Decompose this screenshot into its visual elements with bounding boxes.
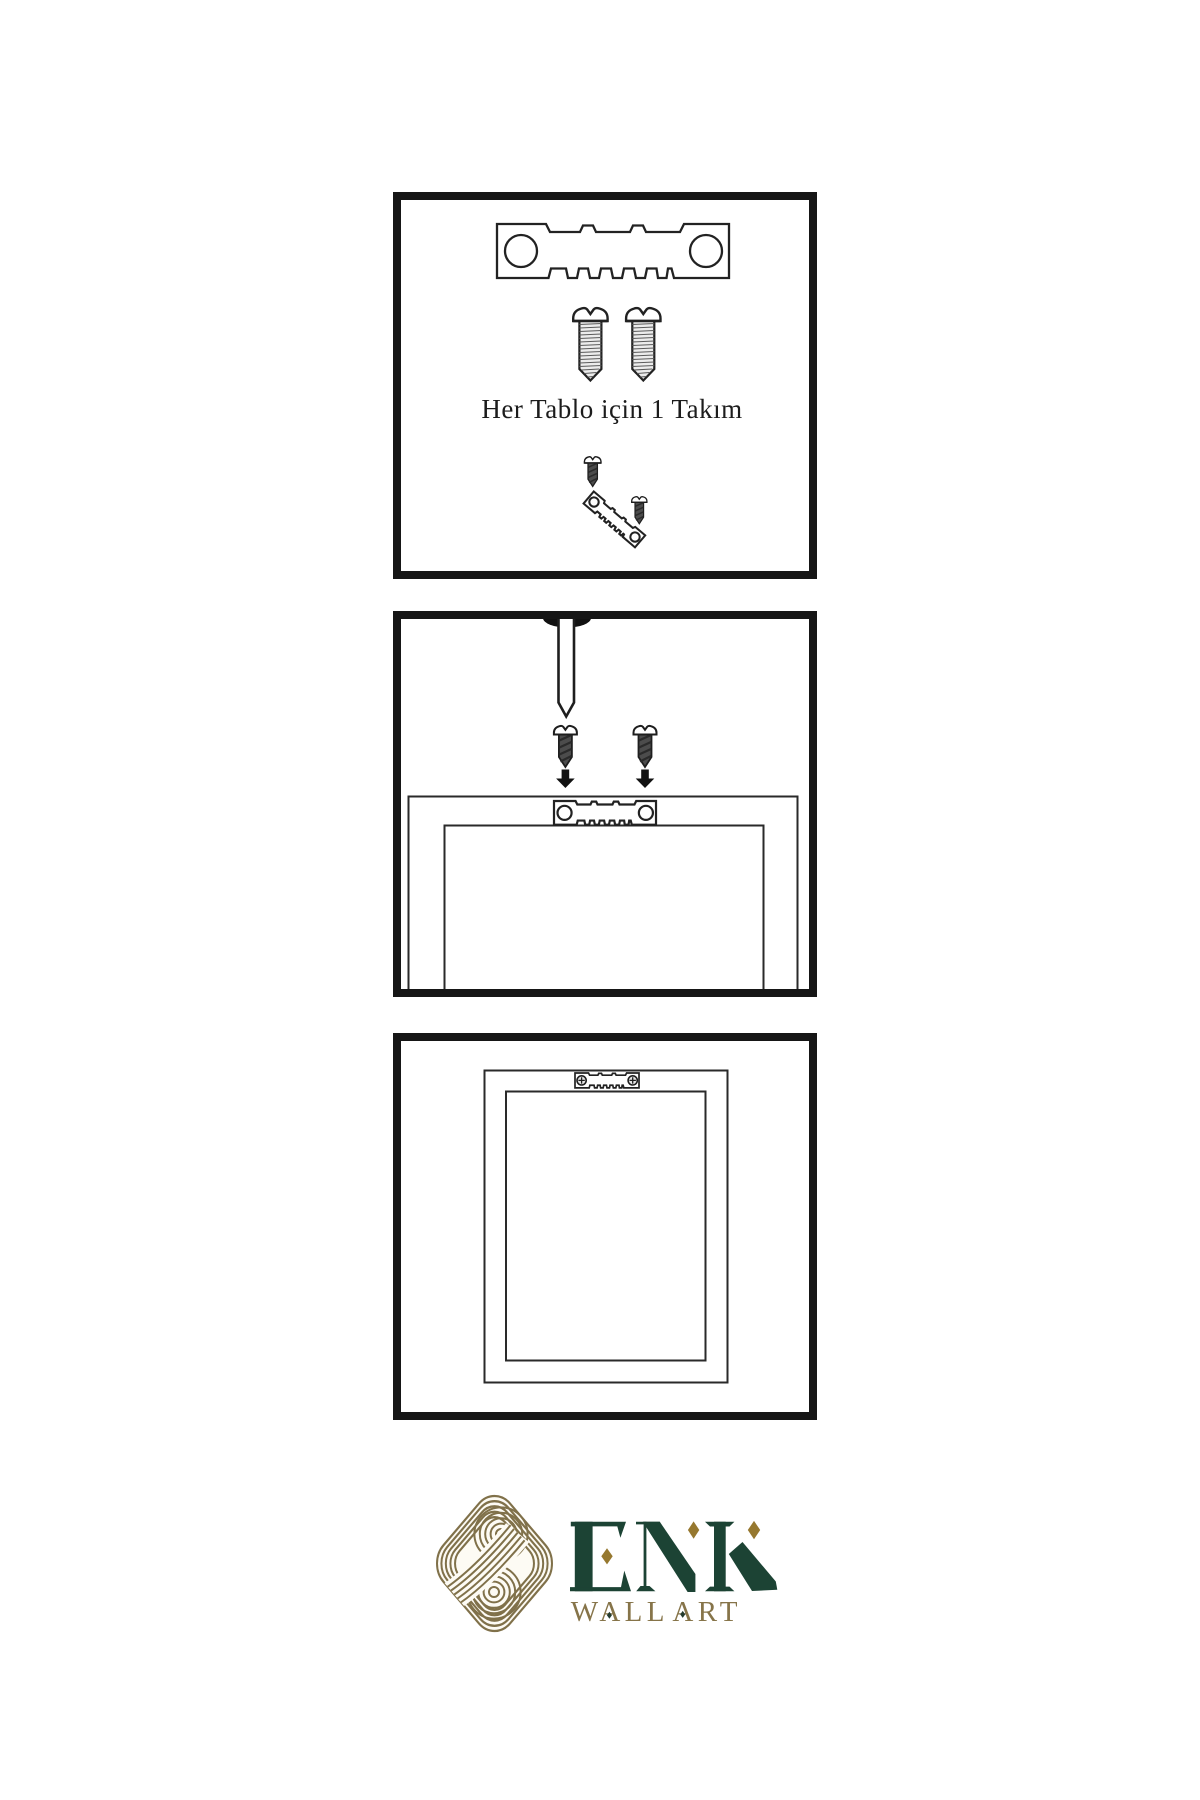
svg-text:WALL ART: WALL ART bbox=[571, 1596, 742, 1628]
svg-text:Her Tablo için 1 Takım: Her Tablo için 1 Takım bbox=[481, 394, 742, 424]
